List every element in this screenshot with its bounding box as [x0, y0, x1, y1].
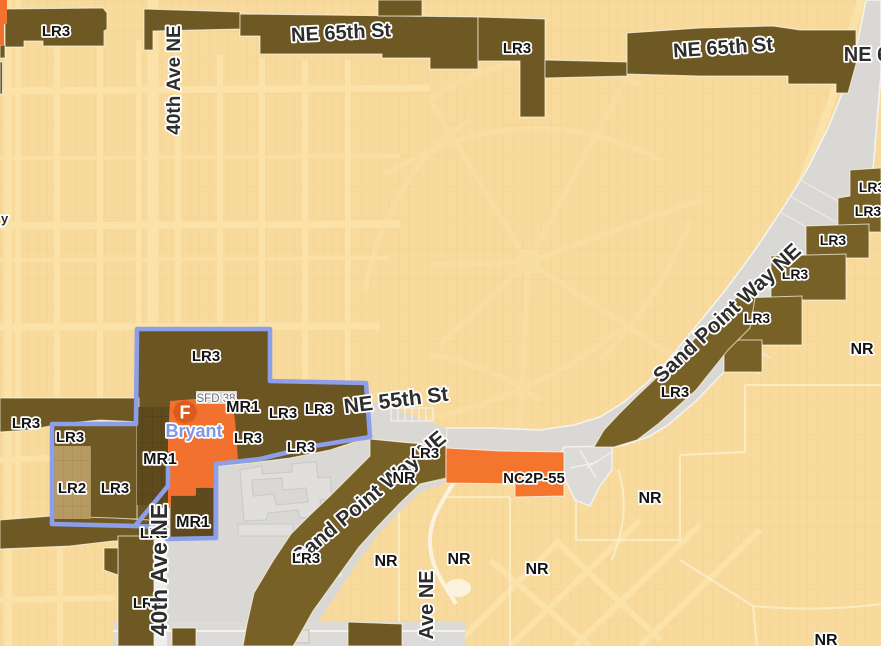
svg-text:NR: NR	[814, 632, 838, 646]
svg-text:LR3: LR3	[855, 203, 881, 219]
svg-text:NR: NR	[525, 561, 549, 578]
svg-text:MR1: MR1	[226, 399, 260, 416]
svg-text:NR: NR	[638, 490, 662, 507]
svg-text:NE 6: NE 6	[844, 44, 881, 66]
svg-text:LR3: LR3	[269, 405, 297, 422]
svg-text:LR3: LR3	[56, 429, 84, 446]
svg-text:NR: NR	[447, 551, 471, 568]
svg-text:LR2: LR2	[58, 480, 86, 497]
svg-text:MR1: MR1	[143, 451, 177, 468]
svg-text:LR3: LR3	[305, 401, 333, 418]
svg-text:LR3: LR3	[859, 179, 881, 195]
svg-text:LR3: LR3	[101, 480, 129, 497]
svg-text:LR3: LR3	[503, 40, 531, 57]
svg-text:Bryant: Bryant	[165, 421, 222, 441]
svg-text:LR3: LR3	[820, 232, 847, 248]
svg-text:Ave NE: Ave NE	[416, 570, 438, 639]
svg-text:LR3: LR3	[411, 445, 439, 462]
svg-text:LR3: LR3	[12, 415, 40, 432]
svg-text:40th Ave NE: 40th Ave NE	[164, 25, 185, 134]
svg-text:NR: NR	[392, 470, 416, 487]
svg-text:LR3: LR3	[292, 550, 320, 567]
svg-text:LR3: LR3	[42, 23, 70, 40]
svg-text:LR3: LR3	[287, 439, 315, 456]
svg-text:LR3: LR3	[192, 348, 220, 365]
svg-text:NR: NR	[374, 553, 398, 570]
svg-text:y: y	[1, 211, 9, 226]
svg-text:NC2P-55: NC2P-55	[503, 470, 565, 487]
svg-text:F: F	[180, 403, 191, 423]
svg-text:LR3: LR3	[234, 430, 262, 447]
svg-text:LR3: LR3	[744, 310, 771, 326]
svg-text:40th Ave NE: 40th Ave NE	[146, 504, 172, 637]
svg-text:NR: NR	[850, 341, 874, 358]
svg-text:MR1: MR1	[176, 514, 210, 531]
